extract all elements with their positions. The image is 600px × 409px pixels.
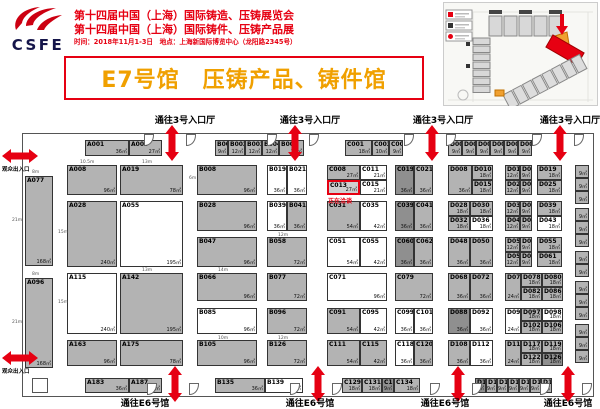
booth-C051[interactable]: C05154㎡ bbox=[327, 237, 360, 267]
booth-cell[interactable]: 9㎡ bbox=[575, 234, 589, 247]
booth-area: 78㎡ bbox=[170, 359, 181, 365]
booth-cell[interactable]: 9㎡ bbox=[575, 307, 589, 320]
booth-area: 240㎡ bbox=[100, 327, 115, 333]
booth-D082[interactable]: D08218㎡ bbox=[521, 287, 542, 301]
booth-C005[interactable]: C0059㎡ bbox=[389, 140, 403, 156]
booth-id: C062 bbox=[416, 238, 433, 245]
passage-arrow-icon bbox=[552, 125, 568, 165]
booth-area: 18㎡ bbox=[529, 294, 540, 300]
booth-A019[interactable]: A01978㎡ bbox=[120, 165, 183, 195]
booth-id: D092 bbox=[472, 309, 490, 316]
booth-C019[interactable]: C01936㎡ bbox=[395, 165, 414, 195]
booth-B021[interactable]: B02136㎡ bbox=[287, 165, 307, 195]
booth-id: A183 bbox=[87, 379, 104, 386]
booth-D003[interactable]: D0039㎡ bbox=[476, 140, 490, 156]
booth-area: 96㎡ bbox=[244, 260, 255, 266]
booth-C120[interactable]: C12036㎡ bbox=[414, 340, 433, 366]
booth-area: 72㎡ bbox=[294, 359, 305, 365]
booth-id: D055 bbox=[539, 238, 557, 245]
booth-D008[interactable]: D00836㎡ bbox=[448, 165, 472, 195]
booth-C035[interactable]: C03542㎡ bbox=[360, 201, 387, 231]
booth-id: C099 bbox=[397, 309, 414, 316]
dimension-label: 10.5m bbox=[80, 160, 94, 165]
booth-id: D112 bbox=[472, 341, 490, 348]
booth-id: D132 bbox=[521, 379, 530, 386]
entrance-label: 观众出入口 bbox=[2, 165, 30, 173]
booth-area: 18㎡ bbox=[480, 209, 491, 215]
booth-D088[interactable]: D08836㎡ bbox=[448, 308, 470, 334]
booth-D108[interactable]: D10836㎡ bbox=[448, 340, 470, 366]
booth-area: 36㎡ bbox=[420, 359, 431, 365]
booth-area: 9㎡ bbox=[509, 386, 517, 392]
booth-area: 12㎡ bbox=[249, 149, 260, 155]
booth-id: D030 bbox=[472, 202, 490, 209]
booth-A115[interactable]: A115240㎡ bbox=[67, 273, 117, 334]
booth-area: 9㎡ bbox=[487, 386, 495, 392]
booth-D097[interactable]: D09718㎡ bbox=[521, 308, 542, 321]
booth-area: 24㎡ bbox=[508, 294, 519, 300]
booth-D025[interactable]: D02518㎡ bbox=[537, 180, 562, 195]
booth-area: 10㎡ bbox=[376, 149, 387, 155]
booth-A008[interactable]: A00896㎡ bbox=[67, 165, 117, 195]
booth-D132[interactable]: D1329㎡ bbox=[519, 378, 530, 393]
booth-area: 72㎡ bbox=[294, 294, 305, 300]
booth-id: B085 bbox=[199, 309, 216, 316]
booth-area: 9㎡ bbox=[531, 386, 539, 392]
booth-D032[interactable]: D03218㎡ bbox=[448, 216, 470, 231]
booth-area: 96㎡ bbox=[104, 188, 115, 194]
booth-A175[interactable]: A17578㎡ bbox=[120, 340, 183, 366]
booth-D129[interactable]: D1299㎡ bbox=[486, 378, 497, 393]
booth-C003[interactable]: C00310㎡ bbox=[372, 140, 389, 156]
booth-id: D088 bbox=[450, 309, 468, 316]
booth-D068[interactable]: D06836㎡ bbox=[448, 273, 470, 301]
booth-D061[interactable]: D06118㎡ bbox=[537, 252, 562, 267]
booth-area: 195㎡ bbox=[166, 327, 181, 333]
booth-D058[interactable]: D0589㎡ bbox=[520, 252, 532, 267]
booth-id: D004 bbox=[492, 141, 504, 148]
booth-D036[interactable]: D03618㎡ bbox=[470, 216, 493, 231]
booth-area: 9㎡ bbox=[579, 356, 587, 362]
booth-id: D057 bbox=[507, 253, 520, 260]
booth-area: 36㎡ bbox=[480, 359, 491, 365]
booth-B066[interactable]: B06696㎡ bbox=[197, 273, 257, 301]
booth-B058[interactable]: B05872㎡ bbox=[267, 237, 307, 267]
booth-area: 9㎡ bbox=[393, 149, 401, 155]
booth-D054[interactable]: D0549㎡ bbox=[520, 237, 532, 252]
booth-area: 42㎡ bbox=[374, 327, 385, 333]
booth-id: C131 bbox=[364, 379, 381, 386]
booth-C021[interactable]: C02136㎡ bbox=[414, 165, 433, 195]
booth-C099[interactable]: C09936㎡ bbox=[395, 308, 414, 334]
booth-cell[interactable]: 9㎡ bbox=[575, 294, 589, 307]
booth-D130[interactable]: D1309㎡ bbox=[497, 378, 508, 393]
booth-area: 9㎡ bbox=[579, 330, 587, 336]
booth-D098[interactable]: D09818㎡ bbox=[542, 308, 563, 321]
booth-id: D041 bbox=[507, 217, 520, 224]
booth-id: D018 bbox=[522, 166, 532, 173]
booth-area: 36㎡ bbox=[480, 294, 491, 300]
booth-id: D032 bbox=[450, 217, 468, 224]
booth-D002[interactable]: D0029㎡ bbox=[462, 140, 476, 156]
booth-B003[interactable]: B00312㎡ bbox=[245, 140, 262, 156]
booth-area: 168㎡ bbox=[36, 361, 51, 367]
booth-id: B096 bbox=[269, 309, 286, 316]
booth-area: 18㎡ bbox=[549, 245, 560, 251]
booth-D126[interactable]: D12618㎡ bbox=[542, 353, 563, 366]
booth-id: A077 bbox=[27, 177, 44, 184]
booth-D037[interactable]: D03712㎡ bbox=[505, 201, 520, 216]
booth-id: D053 bbox=[507, 238, 520, 245]
booth-area: 9㎡ bbox=[522, 245, 530, 251]
booth-D055[interactable]: D05518㎡ bbox=[537, 237, 562, 252]
booth-D078[interactable]: D07818㎡ bbox=[521, 273, 542, 287]
booth-area: 9㎡ bbox=[452, 149, 460, 155]
booth-area: 96㎡ bbox=[374, 294, 385, 300]
booth-D096[interactable]: D09624㎡ bbox=[505, 308, 521, 334]
booth-B039[interactable]: B03936㎡ bbox=[267, 201, 287, 231]
booth-B028[interactable]: B02896㎡ bbox=[197, 201, 257, 231]
booth-area: 9㎡ bbox=[522, 188, 530, 194]
booth-area: 54㎡ bbox=[347, 327, 358, 333]
booth-B096[interactable]: B09672㎡ bbox=[267, 308, 307, 334]
booth-id: D006 bbox=[520, 141, 532, 148]
booth-area: 18㎡ bbox=[549, 209, 560, 215]
booth-B001[interactable]: B0019㎡ bbox=[215, 140, 228, 156]
booth-D010[interactable]: D01018㎡ bbox=[472, 165, 493, 180]
booth-D019[interactable]: D01918㎡ bbox=[537, 165, 562, 180]
booth-D006[interactable]: D0069㎡ bbox=[518, 140, 532, 156]
booth-id: D038 bbox=[522, 202, 532, 209]
booth-area: 18㎡ bbox=[549, 224, 560, 230]
booth-A183[interactable]: A18336㎡ bbox=[85, 378, 129, 393]
booth-D018[interactable]: D0189㎡ bbox=[520, 165, 532, 180]
passage-label-bottom: 通往E6号馆 bbox=[523, 396, 600, 409]
booth-area: 12㎡ bbox=[507, 188, 518, 194]
booth-C001[interactable]: C00118㎡ bbox=[345, 140, 372, 156]
booth-B002[interactable]: B00212㎡ bbox=[228, 140, 245, 156]
booth-area: 9㎡ bbox=[218, 149, 226, 155]
booth-cell[interactable]: 9㎡ bbox=[575, 221, 589, 234]
booth-D021[interactable]: D02112㎡ bbox=[505, 180, 520, 195]
booth-D122[interactable]: D12218㎡ bbox=[521, 353, 542, 366]
booth-area: 9㎡ bbox=[498, 386, 506, 392]
booth-B105[interactable]: B10596㎡ bbox=[197, 340, 257, 366]
booth-B085[interactable]: B08596㎡ bbox=[197, 308, 257, 334]
booth-area: 18㎡ bbox=[349, 386, 360, 392]
booth-area: 9㎡ bbox=[520, 386, 528, 392]
booth-D041[interactable]: D04112㎡ bbox=[505, 216, 520, 231]
booth-cell[interactable]: 9㎡ bbox=[575, 165, 589, 178]
dimension-label: 21m bbox=[12, 320, 22, 325]
booth-id: C071 bbox=[329, 274, 346, 281]
booth-area: 240㎡ bbox=[100, 260, 115, 266]
booth-D050[interactable]: D05036㎡ bbox=[470, 237, 493, 267]
booth-id: D005 bbox=[506, 141, 518, 148]
screenshot-root: CSFE 第十四届中国（上海）国际铸造、压铸展览会 第十四届中国（上海）国际铸件… bbox=[0, 0, 600, 409]
booth-area: 18㎡ bbox=[359, 149, 370, 155]
booth-area: 9㎡ bbox=[480, 149, 488, 155]
booth-area: 9㎡ bbox=[579, 197, 587, 203]
booth-C071[interactable]: C07196㎡ bbox=[327, 273, 387, 301]
booth-id: B058 bbox=[269, 238, 286, 245]
booth-D057[interactable]: D05712㎡ bbox=[505, 252, 520, 267]
booth-area: 18㎡ bbox=[529, 314, 540, 320]
booth-id: A001 bbox=[87, 141, 104, 148]
booth-A142[interactable]: A142195㎡ bbox=[120, 273, 183, 334]
booth-area: 18㎡ bbox=[480, 224, 491, 230]
booth-id: A019 bbox=[122, 166, 139, 173]
booth-D048[interactable]: D04836㎡ bbox=[448, 237, 470, 267]
booth-id: C115 bbox=[362, 341, 379, 348]
booth-D131[interactable]: D1319㎡ bbox=[508, 378, 519, 393]
booth-area: 12㎡ bbox=[507, 245, 518, 251]
booth-area: 36㎡ bbox=[459, 188, 470, 194]
booth-id: D039 bbox=[539, 202, 557, 209]
booth-C133[interactable]: C1339㎡ bbox=[382, 378, 394, 393]
dimension-label: 10m bbox=[218, 336, 228, 341]
booth-area: 9㎡ bbox=[579, 240, 587, 246]
booth-area: 36㎡ bbox=[480, 327, 491, 333]
booth-area: 12㎡ bbox=[232, 149, 243, 155]
booth-B008[interactable]: B00896㎡ bbox=[197, 165, 257, 195]
booth-id: D072 bbox=[472, 274, 490, 281]
booth-D092[interactable]: D09236㎡ bbox=[470, 308, 493, 334]
booth-area: 18㎡ bbox=[550, 359, 561, 365]
passage-label-top: 通往3号入口厅 bbox=[265, 113, 355, 126]
booth-area: 18㎡ bbox=[369, 386, 380, 392]
booth-C115[interactable]: C11542㎡ bbox=[360, 340, 387, 366]
booth-A077[interactable]: A077168㎡ bbox=[25, 176, 53, 266]
booth-id: D130 bbox=[499, 379, 508, 386]
booth-D004[interactable]: D0049㎡ bbox=[490, 140, 504, 156]
booth-id: B003 bbox=[247, 141, 262, 148]
booth-area: 36㎡ bbox=[116, 149, 127, 155]
booth-cell[interactable]: 9㎡ bbox=[575, 337, 589, 350]
booth-id: D036 bbox=[472, 217, 490, 224]
booth-id: D025 bbox=[539, 181, 557, 188]
booth-cell[interactable]: 9㎡ bbox=[575, 251, 589, 264]
booth-id: D028 bbox=[450, 202, 468, 209]
booth-D030[interactable]: D03018㎡ bbox=[470, 201, 493, 216]
booth-C039[interactable]: C03936㎡ bbox=[395, 201, 414, 231]
booth-C015[interactable]: C01521㎡ bbox=[360, 180, 387, 195]
booth-id: B066 bbox=[199, 274, 216, 281]
booth-D076[interactable]: D07624㎡ bbox=[505, 273, 521, 301]
booth-B135[interactable]: B13536㎡ bbox=[215, 378, 265, 393]
booth-C013[interactable]: C01327㎡ bbox=[327, 180, 360, 195]
booth-C131[interactable]: C13118㎡ bbox=[362, 378, 382, 393]
booth-area: 72㎡ bbox=[420, 294, 431, 300]
booth-area: 9㎡ bbox=[579, 214, 587, 220]
booth-id: C008 bbox=[329, 166, 346, 173]
booth-C134[interactable]: C13418㎡ bbox=[394, 378, 420, 393]
booth-area: 36㎡ bbox=[401, 359, 412, 365]
booth-B077[interactable]: B07772㎡ bbox=[267, 273, 307, 301]
booth-A028[interactable]: A028240㎡ bbox=[67, 201, 117, 267]
booth-D043[interactable]: D04318㎡ bbox=[537, 216, 562, 231]
booth-D005[interactable]: D0059㎡ bbox=[504, 140, 518, 156]
booth-area: 18㎡ bbox=[550, 327, 561, 333]
booth-D022[interactable]: D0229㎡ bbox=[520, 180, 532, 195]
booth-area: 96㎡ bbox=[244, 224, 255, 230]
booth-id: C001 bbox=[347, 141, 364, 148]
booth-id: D113 bbox=[507, 341, 521, 348]
booth-area: 36㎡ bbox=[401, 260, 412, 266]
booth-C008[interactable]: C00827㎡ bbox=[327, 165, 360, 180]
booth-id: B105 bbox=[199, 341, 216, 348]
booth-area: 18㎡ bbox=[529, 359, 540, 365]
booth-id: D061 bbox=[539, 253, 557, 260]
booth-id: A115 bbox=[69, 274, 86, 281]
booth-id: C120 bbox=[416, 341, 433, 348]
booth-A055[interactable]: A055195㎡ bbox=[120, 201, 183, 267]
service-room bbox=[32, 378, 48, 393]
booth-D072[interactable]: D07236㎡ bbox=[470, 273, 493, 301]
entrance-label: 观众出入口 bbox=[2, 367, 30, 375]
booth-D017[interactable]: D01712㎡ bbox=[505, 165, 520, 180]
booth-area: 72㎡ bbox=[294, 327, 305, 333]
booth-area: 24㎡ bbox=[508, 327, 519, 333]
booth-cell[interactable]: 9㎡ bbox=[575, 208, 589, 221]
booth-A001[interactable]: A00136㎡ bbox=[85, 140, 129, 156]
booth-area: 9㎡ bbox=[579, 313, 587, 319]
dimension-label: 12m bbox=[278, 336, 288, 341]
booth-B041[interactable]: B04136㎡ bbox=[287, 201, 307, 231]
booth-B126[interactable]: B12672㎡ bbox=[267, 340, 307, 366]
booth-id: C079 bbox=[397, 274, 414, 281]
dimension-label: 8m bbox=[32, 272, 39, 277]
booth-C101[interactable]: C10136㎡ bbox=[414, 308, 433, 334]
booth-D112[interactable]: D11236㎡ bbox=[470, 340, 493, 366]
booth-C031[interactable]: C03154㎡ bbox=[327, 201, 360, 231]
booth-C129[interactable]: C12918㎡ bbox=[342, 378, 362, 393]
booth-id: D048 bbox=[450, 238, 468, 245]
floor-plan: A00136㎡A00527㎡B0019㎡B00212㎡B00312㎡B00412… bbox=[0, 0, 600, 409]
booth-area: 27㎡ bbox=[149, 149, 160, 155]
booth-area: 36㎡ bbox=[420, 188, 431, 194]
booth-id: D076 bbox=[507, 274, 521, 281]
booth-D117[interactable]: D11718㎡ bbox=[521, 340, 542, 353]
booth-id: B039 bbox=[269, 202, 286, 209]
booth-id: C095 bbox=[362, 309, 379, 316]
booth-id: C011 bbox=[362, 166, 379, 173]
booth-cell[interactable]: 9㎡ bbox=[575, 178, 589, 191]
booth-id: C005 bbox=[391, 141, 403, 148]
booth-area: 36㎡ bbox=[401, 327, 412, 333]
booth-B047[interactable]: B04796㎡ bbox=[197, 237, 257, 267]
booth-D038[interactable]: D0389㎡ bbox=[520, 201, 532, 216]
booth-id: D010 bbox=[474, 166, 492, 173]
booth-area: 9㎡ bbox=[522, 260, 530, 266]
booth-C062[interactable]: C06236㎡ bbox=[414, 237, 433, 267]
booth-id: D021 bbox=[507, 181, 520, 188]
passage-label-bottom: 通往E6号馆 bbox=[265, 396, 355, 409]
booth-area: 96㎡ bbox=[244, 188, 255, 194]
booth-C060[interactable]: C06036㎡ bbox=[395, 237, 414, 267]
booth-id: B041 bbox=[289, 202, 306, 209]
booth-area: 78㎡ bbox=[170, 188, 181, 194]
booth-id: C041 bbox=[416, 202, 433, 209]
booth-cell[interactable]: 9㎡ bbox=[575, 191, 589, 204]
booth-C079[interactable]: C07972㎡ bbox=[395, 273, 433, 301]
booth-id: C118 bbox=[397, 341, 414, 348]
booth-id: A142 bbox=[122, 274, 139, 281]
booth-area: 12㎡ bbox=[507, 209, 518, 215]
booth-A187[interactable]: A18727㎡ bbox=[129, 378, 162, 393]
booth-C111[interactable]: C11154㎡ bbox=[327, 340, 360, 366]
booth-id: C129 bbox=[344, 379, 361, 386]
booth-D119[interactable]: D11918㎡ bbox=[542, 340, 563, 353]
booth-id: D131 bbox=[510, 379, 519, 386]
booth-area: 36㎡ bbox=[420, 260, 431, 266]
booth-D028[interactable]: D02818㎡ bbox=[448, 201, 470, 216]
booth-id: C021 bbox=[416, 166, 433, 173]
booth-area: 42㎡ bbox=[374, 224, 385, 230]
booth-id: C060 bbox=[397, 238, 414, 245]
dimension-label: 6m bbox=[189, 176, 196, 181]
booth-area: 18㎡ bbox=[550, 294, 561, 300]
booth-C091[interactable]: C09154㎡ bbox=[327, 308, 360, 334]
booth-id: C101 bbox=[416, 309, 433, 316]
booth-D042[interactable]: D0429㎡ bbox=[520, 216, 532, 231]
booth-id: B047 bbox=[199, 238, 216, 245]
booth-area: 36㎡ bbox=[420, 224, 431, 230]
booth-area: 12㎡ bbox=[507, 224, 518, 230]
booth-cell[interactable]: 9㎡ bbox=[575, 324, 589, 337]
booth-C041[interactable]: C04136㎡ bbox=[414, 201, 433, 231]
booth-id: D068 bbox=[450, 274, 468, 281]
booth-id: A028 bbox=[69, 202, 86, 209]
booth-cell[interactable]: 9㎡ bbox=[575, 264, 589, 277]
booth-area: 9㎡ bbox=[384, 386, 392, 392]
booth-area: 12㎡ bbox=[507, 260, 518, 266]
booth-area: 21㎡ bbox=[374, 173, 385, 179]
booth-C118[interactable]: C11836㎡ bbox=[395, 340, 414, 366]
booth-C055[interactable]: C05542㎡ bbox=[360, 237, 387, 267]
booth-D106[interactable]: D10618㎡ bbox=[542, 321, 563, 334]
booth-area: 72㎡ bbox=[294, 260, 305, 266]
booth-area: 9㎡ bbox=[522, 224, 530, 230]
booth-area: 18㎡ bbox=[549, 188, 560, 194]
dimension-label: 15m bbox=[58, 300, 68, 305]
booth-D015[interactable]: D01518㎡ bbox=[472, 180, 493, 195]
booth-C095[interactable]: C09542㎡ bbox=[360, 308, 387, 334]
booth-id: C015 bbox=[362, 181, 379, 188]
booth-id: C051 bbox=[329, 238, 346, 245]
booth-id: C091 bbox=[329, 309, 346, 316]
booth-cell[interactable]: 9㎡ bbox=[575, 350, 589, 363]
booth-area: 36㎡ bbox=[116, 386, 127, 392]
booth-D080[interactable]: D08018㎡ bbox=[542, 273, 563, 287]
booth-area: 18㎡ bbox=[480, 173, 491, 179]
booth-D039[interactable]: D03918㎡ bbox=[537, 201, 562, 216]
booth-cell[interactable]: 9㎡ bbox=[575, 281, 589, 294]
booth-D102[interactable]: D10218㎡ bbox=[521, 321, 542, 334]
booth-A163[interactable]: A16396㎡ bbox=[67, 340, 117, 366]
booth-D113[interactable]: D11324㎡ bbox=[505, 340, 521, 366]
booth-B019[interactable]: B01936㎡ bbox=[267, 165, 287, 195]
booth-D086[interactable]: D08618㎡ bbox=[542, 287, 563, 301]
booth-area: 96㎡ bbox=[104, 359, 115, 365]
booth-D053[interactable]: D05312㎡ bbox=[505, 237, 520, 252]
booth-C011[interactable]: C01121㎡ bbox=[360, 165, 387, 180]
passage-label-top: 通往3号入口厅 bbox=[525, 113, 600, 126]
booth-area: 96㎡ bbox=[244, 294, 255, 300]
booth-area: 9㎡ bbox=[522, 149, 530, 155]
booth-id: A055 bbox=[122, 202, 139, 209]
booth-area: 9㎡ bbox=[579, 270, 587, 276]
